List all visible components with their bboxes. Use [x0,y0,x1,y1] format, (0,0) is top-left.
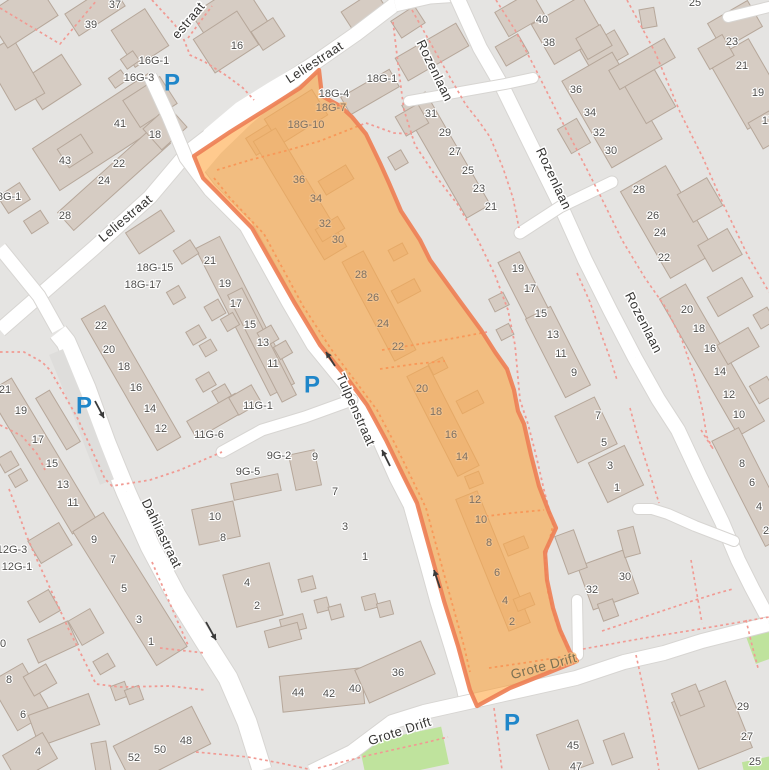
svg-text:6: 6 [494,567,500,579]
svg-text:11: 11 [67,497,78,509]
svg-text:39: 39 [85,19,97,31]
svg-text:26: 26 [647,210,659,222]
svg-text:26: 26 [367,292,379,304]
svg-text:18G-4: 18G-4 [319,88,350,100]
svg-text:P: P [504,709,520,736]
svg-text:14: 14 [456,451,468,463]
svg-text:27: 27 [741,731,753,743]
svg-text:30: 30 [619,571,631,583]
svg-text:18G-17: 18G-17 [125,279,162,291]
svg-text:4: 4 [35,746,41,758]
svg-text:15: 15 [46,458,58,470]
svg-text:37: 37 [109,0,121,11]
svg-text:20: 20 [681,304,693,316]
svg-text:21: 21 [204,255,216,267]
svg-text:22: 22 [658,252,670,264]
svg-text:31: 31 [425,108,437,120]
svg-text:10: 10 [733,409,745,421]
svg-text:12: 12 [723,389,735,401]
svg-text:23: 23 [726,36,738,48]
svg-text:13: 13 [257,337,269,349]
svg-text:32: 32 [593,127,605,139]
svg-text:44: 44 [292,687,304,699]
svg-text:43: 43 [59,155,71,167]
svg-text:25: 25 [749,756,761,768]
svg-text:10: 10 [475,514,487,526]
svg-text:11G-1: 11G-1 [243,400,273,412]
svg-text:28: 28 [355,269,367,281]
svg-text:24: 24 [654,227,666,239]
svg-text:16G-1: 16G-1 [139,55,170,67]
svg-text:2: 2 [254,600,260,612]
svg-text:2: 2 [509,616,515,628]
svg-text:25: 25 [689,0,701,9]
svg-text:12: 12 [469,494,481,506]
svg-text:28: 28 [633,184,645,196]
svg-text:8: 8 [739,458,745,470]
svg-text:7: 7 [332,486,338,498]
svg-text:36: 36 [392,667,404,679]
svg-text:24: 24 [377,318,389,330]
svg-text:19: 19 [15,405,27,417]
svg-text:4: 4 [244,577,250,589]
svg-text:14: 14 [714,366,726,378]
svg-text:10: 10 [0,638,6,650]
svg-text:34: 34 [310,193,322,205]
svg-text:1: 1 [148,636,154,648]
svg-text:18: 18 [693,323,705,335]
svg-text:16: 16 [130,382,142,394]
svg-text:52: 52 [128,752,140,764]
svg-text:18G-1: 18G-1 [367,73,398,85]
svg-text:9G-2: 9G-2 [267,450,291,462]
svg-text:18: 18 [118,361,130,373]
svg-text:50: 50 [154,744,166,756]
svg-text:23: 23 [473,183,485,195]
svg-text:11G-6: 11G-6 [194,429,224,441]
svg-text:29: 29 [439,127,451,139]
svg-text:30: 30 [332,234,344,246]
svg-text:3: 3 [342,521,348,533]
svg-text:9G-5: 9G-5 [236,466,260,478]
svg-text:25: 25 [462,165,474,177]
svg-text:29: 29 [737,701,749,713]
svg-text:5: 5 [121,583,127,595]
svg-text:47: 47 [570,761,582,770]
svg-text:17: 17 [762,115,769,127]
svg-text:22: 22 [392,341,404,353]
svg-text:15: 15 [244,319,256,331]
svg-text:11: 11 [555,348,566,360]
svg-text:40: 40 [349,683,361,695]
svg-text:P: P [164,69,180,96]
svg-text:9: 9 [571,367,577,379]
svg-text:13: 13 [57,479,69,491]
svg-text:38: 38 [543,37,555,49]
svg-text:13: 13 [547,329,559,341]
svg-text:8: 8 [486,537,492,549]
svg-text:20: 20 [103,344,115,356]
svg-text:6: 6 [749,477,755,489]
svg-text:18G-7: 18G-7 [316,102,347,114]
svg-text:19: 19 [752,87,764,99]
svg-text:16: 16 [231,40,243,52]
svg-text:16G-3: 16G-3 [124,72,155,84]
svg-text:22: 22 [95,320,107,332]
svg-text:17: 17 [230,298,242,310]
svg-text:12: 12 [155,423,167,435]
svg-text:3: 3 [607,460,613,472]
svg-text:30: 30 [605,145,617,157]
svg-text:20: 20 [416,383,428,395]
svg-text:5: 5 [601,437,607,449]
svg-text:21: 21 [736,60,748,72]
svg-text:48: 48 [180,735,192,747]
svg-text:12G-1: 12G-1 [2,561,33,573]
svg-text:41: 41 [114,118,126,130]
svg-text:P: P [304,371,320,398]
svg-text:7: 7 [110,554,116,566]
svg-text:10: 10 [209,511,221,523]
svg-text:4: 4 [502,595,508,607]
svg-text:18: 18 [149,129,161,141]
svg-text:19: 19 [219,278,231,290]
svg-text:7: 7 [595,410,601,422]
svg-text:45: 45 [567,740,579,752]
svg-text:36: 36 [570,84,582,96]
svg-text:16: 16 [704,343,716,355]
svg-text:6: 6 [20,709,26,721]
svg-text:4: 4 [756,501,762,513]
svg-text:8: 8 [6,674,12,686]
svg-text:12G-3: 12G-3 [0,544,27,556]
svg-text:21: 21 [485,201,497,213]
svg-text:2: 2 [763,525,769,537]
svg-text:1: 1 [614,482,620,494]
svg-text:14: 14 [144,403,156,415]
svg-text:P: P [76,392,92,419]
svg-text:32: 32 [586,584,598,596]
svg-text:18G-1: 18G-1 [0,191,21,203]
svg-text:36: 36 [293,174,305,186]
svg-text:32: 32 [319,218,331,230]
svg-text:21: 21 [0,384,11,396]
svg-text:40: 40 [536,14,548,26]
svg-text:15: 15 [535,308,547,320]
svg-text:9: 9 [312,451,318,463]
svg-text:28: 28 [59,210,71,222]
svg-text:19: 19 [512,263,524,275]
svg-text:22: 22 [113,158,125,170]
svg-text:27: 27 [449,146,461,158]
svg-text:18G-15: 18G-15 [137,262,174,274]
svg-text:9: 9 [91,534,97,546]
svg-text:42: 42 [323,688,335,700]
svg-text:3: 3 [136,614,142,626]
svg-text:8: 8 [220,532,226,544]
svg-text:16: 16 [445,429,457,441]
svg-text:18: 18 [430,406,442,418]
svg-text:18G-10: 18G-10 [288,119,325,131]
svg-text:34: 34 [584,107,596,119]
svg-text:1: 1 [362,551,368,563]
svg-text:17: 17 [524,283,536,295]
svg-text:17: 17 [32,434,44,446]
svg-text:11: 11 [267,358,278,370]
svg-text:24: 24 [98,175,110,187]
